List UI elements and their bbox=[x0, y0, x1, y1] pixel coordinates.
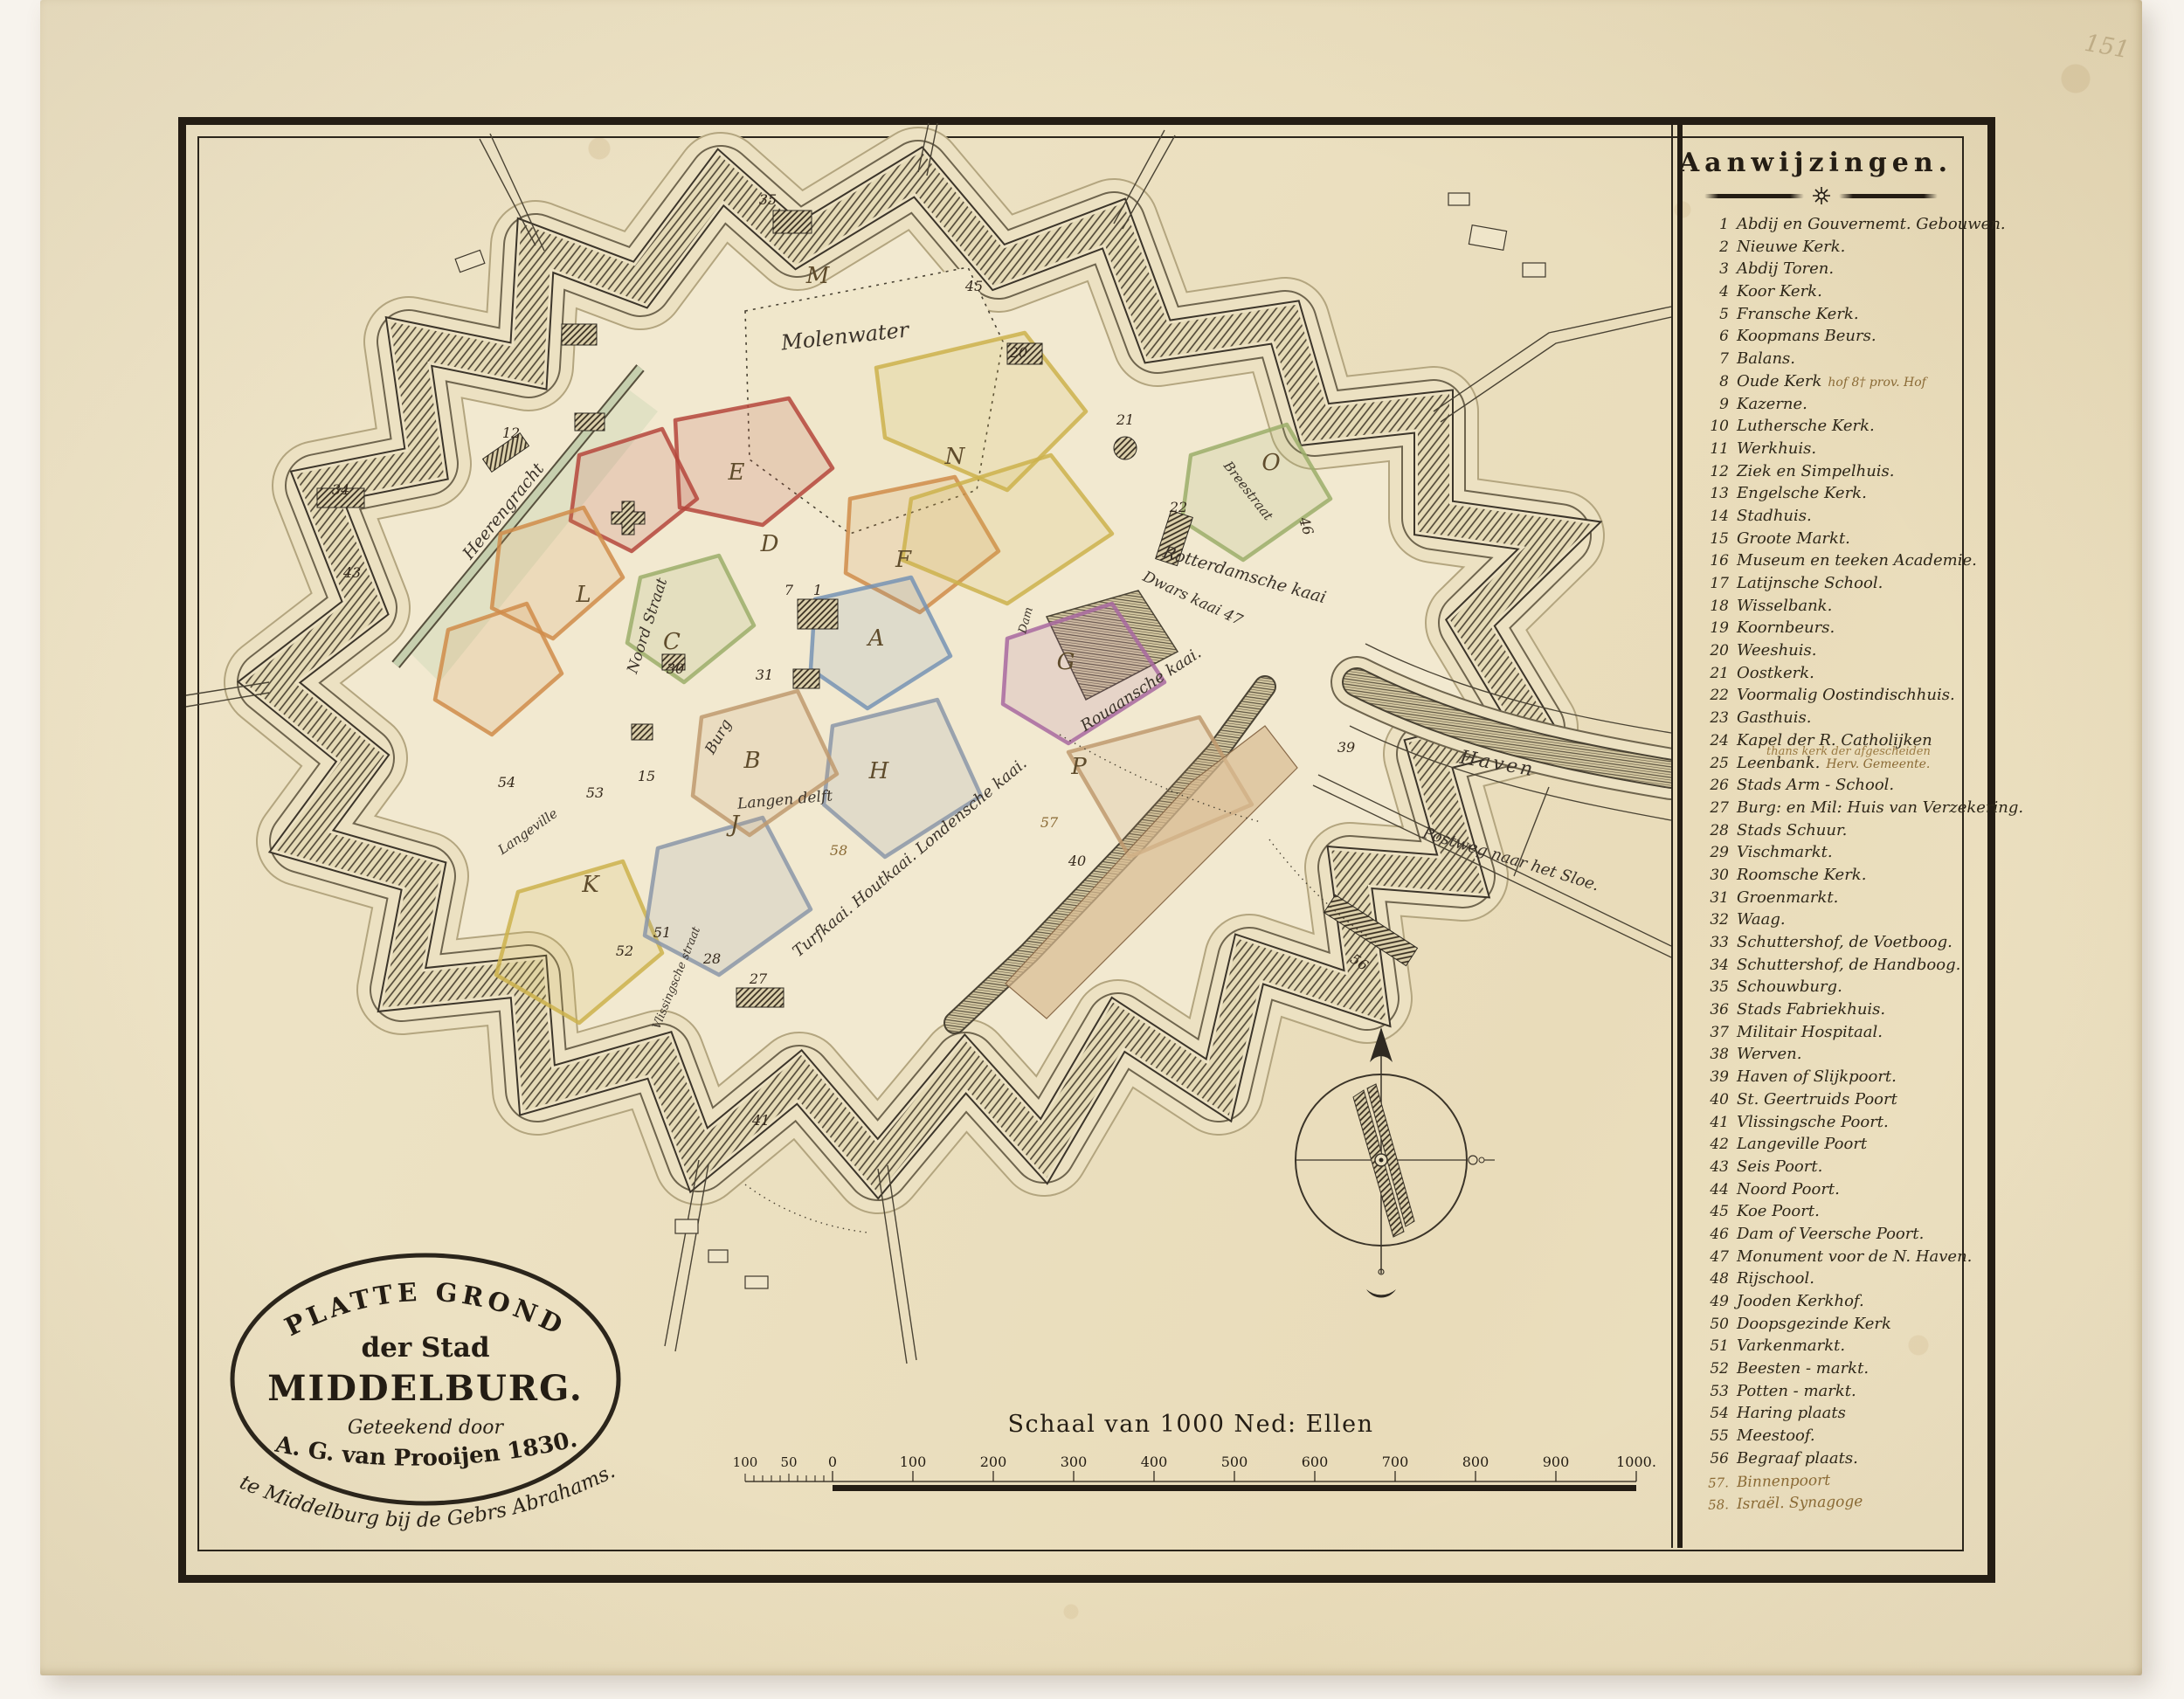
legend-item-label: Langeville Poort bbox=[1737, 1135, 1873, 1151]
svg-text:0: 0 bbox=[828, 1454, 837, 1470]
legend-item-label: Doopsgezinde Kerk bbox=[1737, 1315, 1897, 1331]
legend-item: 19 Koornbeurs. bbox=[1697, 618, 1953, 641]
legend-item-number: 6 bbox=[1697, 328, 1729, 345]
legend-item-label: Abdij en Gouvernemt. Gebouwen. bbox=[1737, 215, 2012, 231]
legend-item-number: 21 bbox=[1697, 665, 1729, 682]
legend-item: 41 Vlissingsche Poort. bbox=[1697, 1113, 1953, 1136]
map-number: 45 bbox=[964, 278, 983, 294]
map-number: 31 bbox=[756, 666, 773, 683]
svg-text:100: 100 bbox=[900, 1454, 927, 1470]
legend-item-label: Haven of Slijkpoort. bbox=[1737, 1067, 1903, 1084]
legend-item: 29 Vischmarkt. bbox=[1697, 843, 1953, 866]
legend-item-label: Kazerne. bbox=[1737, 395, 1814, 411]
scale-main-ticks bbox=[833, 1471, 1636, 1481]
map-number: 20 bbox=[1009, 344, 1027, 361]
legend-item: 28 Stads Schuur. bbox=[1697, 821, 1953, 844]
legend-item-number: 36 bbox=[1697, 1001, 1729, 1019]
legend-item-number: 45 bbox=[1697, 1203, 1729, 1220]
block-kazerne bbox=[575, 413, 605, 431]
block-oostkerk bbox=[1114, 437, 1137, 459]
legend-item-number: 27 bbox=[1697, 799, 1729, 817]
suburb-block bbox=[1523, 263, 1545, 277]
legend-item-number: 8 bbox=[1697, 373, 1729, 390]
district-letter: E bbox=[728, 459, 745, 486]
legend-item: 37 Militair Hospitaal. bbox=[1697, 1023, 1953, 1046]
scale-pre-label: 100 bbox=[733, 1454, 758, 1470]
legend-item-number: 20 bbox=[1697, 642, 1729, 660]
legend-item-number: 56 bbox=[1697, 1450, 1729, 1468]
legend-item-number: 57. bbox=[1697, 1475, 1729, 1491]
district-letter: K bbox=[581, 872, 600, 898]
legend-item-number: 28 bbox=[1697, 822, 1729, 839]
legend-item-label: Monument voor de N. Haven. bbox=[1737, 1247, 1978, 1264]
legend-item-label: Rijschool. bbox=[1737, 1269, 1821, 1286]
legend-item: 54 Haring plaats bbox=[1697, 1404, 1953, 1426]
scanned-map-sheet: { "corner_mark": "151", "cartouche": { "… bbox=[0, 0, 2184, 1699]
legend-item-number: 7 bbox=[1697, 350, 1729, 368]
suburb-block bbox=[708, 1250, 728, 1262]
legend-item: 26 Stads Arm - School. bbox=[1697, 776, 1953, 798]
legend-item-number: 38 bbox=[1697, 1046, 1729, 1063]
legend-item-label: Luthersche Kerk. bbox=[1737, 417, 1881, 433]
suburb-block bbox=[1469, 225, 1506, 251]
legend-item-label: Schuttershof, de Voetboog. bbox=[1737, 933, 1959, 950]
map-number: 43 bbox=[342, 564, 361, 581]
legend-item-label: Abdij Toren. bbox=[1737, 259, 1840, 276]
legend-item-label: Haring plaats bbox=[1737, 1404, 1852, 1420]
map-number: 15 bbox=[638, 768, 655, 784]
legend-item-label: Fransche Kerk. bbox=[1737, 305, 1865, 321]
legend-item-number: 11 bbox=[1697, 440, 1729, 458]
legend-item: 17 Latijnsche School. bbox=[1697, 574, 1953, 597]
legend-item: 49 Jooden Kerkhof. bbox=[1697, 1292, 1953, 1315]
legend-item: 1 Abdij en Gouvernemt. Gebouwen. bbox=[1697, 215, 1953, 238]
legend-item: 6 Koopmans Beurs. bbox=[1697, 327, 1953, 349]
city-map: Molenwater Heerengracht Noord Straat Bur… bbox=[186, 123, 1671, 1564]
legend-item-number: 40 bbox=[1697, 1091, 1729, 1108]
legend-item: 58. Israël. Synagoge bbox=[1697, 1491, 1953, 1519]
legend-item-number: 58. bbox=[1697, 1497, 1729, 1514]
legend-panel: Aanwijzingen. 1 Abdij en Gouvernemt. Geb… bbox=[1671, 125, 1960, 1548]
block-huis-verzekering bbox=[736, 988, 784, 1007]
legend-item: 12 Ziek en Simpelhuis. bbox=[1697, 462, 1953, 485]
legend-item-number: 26 bbox=[1697, 777, 1729, 794]
suburb-block bbox=[745, 1276, 768, 1288]
legend-item: 10 Luthersche Kerk. bbox=[1697, 417, 1953, 439]
map-number: 51 bbox=[653, 924, 671, 941]
legend-item: 55 Meestoof. bbox=[1697, 1426, 1953, 1449]
map-number: 34 bbox=[332, 481, 349, 498]
legend-item-label: Schouwburg. bbox=[1737, 977, 1849, 994]
legend-item-number: 44 bbox=[1697, 1181, 1729, 1198]
legend-item: 20 Weeshuis. bbox=[1697, 641, 1953, 664]
legend-item: 9 Kazerne. bbox=[1697, 395, 1953, 418]
legend-item: 2 Nieuwe Kerk. bbox=[1697, 238, 1953, 260]
legend-item-label: Koornbeurs. bbox=[1737, 618, 1841, 635]
legend-item-label: Voormalig Oostindischhuis. bbox=[1737, 686, 1961, 702]
district-letter: M bbox=[805, 263, 831, 289]
legend-item: 46 Dam of Veersche Poort. bbox=[1697, 1225, 1953, 1247]
legend-item: 23 Gasthuis. bbox=[1697, 708, 1953, 731]
legend-item: 36 Stads Fabriekhuis. bbox=[1697, 1000, 1953, 1023]
district-letter: N bbox=[944, 444, 966, 470]
legend-item-label: Wisselbank. bbox=[1737, 597, 1838, 613]
legend-item-number: 1 bbox=[1697, 216, 1729, 233]
legend-item-number: 29 bbox=[1697, 844, 1729, 861]
legend-item: 56 Begraaf plaats. bbox=[1697, 1449, 1953, 1472]
legend-item: 38 Werven. bbox=[1697, 1045, 1953, 1067]
legend-item: 25 Leenbank.Herv. Gemeente. bbox=[1697, 754, 1953, 777]
map-number: 35 bbox=[759, 191, 777, 208]
legend-item: 43 Seis Poort. bbox=[1697, 1157, 1953, 1180]
legend-item-number: 24 bbox=[1697, 732, 1729, 749]
map-number: 52 bbox=[616, 943, 633, 959]
legend-item-number: 31 bbox=[1697, 889, 1729, 907]
district-letter: F bbox=[895, 547, 912, 573]
title-cartouche: PLATTE GROND der Stad MIDDELBURG. Geteek… bbox=[232, 1255, 619, 1532]
svg-text:1000.: 1000. bbox=[1616, 1454, 1656, 1470]
legend-item-label: Balans. bbox=[1737, 349, 1801, 366]
legend-item-label: Binnenpoort bbox=[1737, 1471, 1837, 1488]
svg-text:400: 400 bbox=[1141, 1454, 1168, 1470]
legend-item-label: St. Geertruids Poort bbox=[1737, 1090, 1904, 1107]
suburb-block bbox=[1448, 193, 1469, 205]
cartouche-line2: der Stad bbox=[362, 1332, 490, 1364]
legend-item-number: 55 bbox=[1697, 1427, 1729, 1445]
legend-item-label: Latijnsche School. bbox=[1737, 574, 1889, 591]
legend-item-label: Oude Kerkhof 8† prov. Hof bbox=[1737, 372, 1926, 389]
legend-item: 53 Potten - markt. bbox=[1697, 1382, 1953, 1405]
map-number: 22 bbox=[1169, 499, 1187, 515]
legend-item-label: Leenbank.Herv. Gemeente. bbox=[1737, 754, 1930, 770]
scale-pre-ticks bbox=[745, 1474, 824, 1481]
legend-item: 30 Roomsche Kerk. bbox=[1697, 866, 1953, 888]
legend-item-number: 43 bbox=[1697, 1158, 1729, 1176]
legend-item: 27 Burg: en Mil: Huis van Verzekering. bbox=[1697, 798, 1953, 821]
legend-item-number: 17 bbox=[1697, 575, 1729, 592]
scale-bar-title: Schaal van 1000 Ned: Ellen bbox=[1008, 1411, 1374, 1438]
legend-item: 52 Beesten - markt. bbox=[1697, 1359, 1953, 1382]
legend-item-label: Burg: en Mil: Huis van Verzekering. bbox=[1737, 798, 2029, 815]
legend-item-label: Groote Markt. bbox=[1737, 529, 1856, 546]
block-schouwburg bbox=[773, 211, 812, 233]
district-letter: A bbox=[867, 625, 885, 652]
legend-item-number: 22 bbox=[1697, 687, 1729, 704]
legend-item: 51 Varkenmarkt. bbox=[1697, 1336, 1953, 1359]
legend-item-number: 23 bbox=[1697, 709, 1729, 727]
map-number: 27 bbox=[749, 970, 768, 987]
map-number: 39 bbox=[1337, 739, 1355, 756]
legend-item-number: 33 bbox=[1697, 934, 1729, 951]
svg-text:200: 200 bbox=[980, 1454, 1007, 1470]
legend-item-label: Dam of Veersche Poort. bbox=[1737, 1225, 1930, 1241]
legend-item-number: 3 bbox=[1697, 260, 1729, 278]
east-ornament-icon bbox=[1479, 1157, 1484, 1163]
legend-item-number: 12 bbox=[1697, 463, 1729, 480]
block-stadhuis bbox=[632, 724, 653, 740]
legend-item-label: Stads Fabriekhuis. bbox=[1737, 1000, 1891, 1017]
legend-item-label: Seis Poort. bbox=[1737, 1157, 1828, 1174]
legend-item-label: Meestoof. bbox=[1737, 1426, 1821, 1443]
ornament-rule-left bbox=[1704, 194, 1804, 198]
legend-title: Aanwijzingen. bbox=[1671, 148, 1960, 178]
district-letter: L bbox=[575, 582, 591, 608]
legend-item-label: Potten - markt. bbox=[1737, 1382, 1863, 1399]
legend-item-label: Gasthuis. bbox=[1737, 708, 1817, 725]
map-number: 1 bbox=[813, 582, 822, 598]
block-abbey bbox=[798, 599, 838, 629]
legend-item: 35 Schouwburg. bbox=[1697, 977, 1953, 1000]
legend-list: 1 Abdij en Gouvernemt. Gebouwen. 2 Nieuw… bbox=[1697, 215, 1953, 1516]
legend-item-label: Koopmans Beurs. bbox=[1737, 327, 1883, 343]
legend-item-number: 51 bbox=[1697, 1337, 1729, 1355]
svg-text:300: 300 bbox=[1061, 1454, 1088, 1470]
district-letter: P bbox=[1070, 754, 1087, 780]
district-letter: D bbox=[760, 531, 779, 557]
compass-hub-dot bbox=[1379, 1158, 1384, 1163]
legend-item-number: 35 bbox=[1697, 978, 1729, 996]
legend-item: 3 Abdij Toren. bbox=[1697, 259, 1953, 282]
legend-item: 18 Wisselbank. bbox=[1697, 597, 1953, 619]
legend-item-label: Stads Arm - School. bbox=[1737, 776, 1900, 792]
legend-item-number: 15 bbox=[1697, 530, 1729, 548]
legend-item: 16 Museum en teeken Academie. bbox=[1697, 551, 1953, 574]
map-number: 54 bbox=[498, 774, 515, 791]
legend-item: 15 Groote Markt. bbox=[1697, 529, 1953, 552]
legend-item-label: Werven. bbox=[1737, 1045, 1807, 1061]
legend-item: 45 Koe Poort. bbox=[1697, 1202, 1953, 1225]
legend-item-label: Roomsche Kerk. bbox=[1737, 866, 1872, 882]
suburb-block bbox=[455, 250, 485, 272]
svg-text:700: 700 bbox=[1382, 1454, 1409, 1470]
legend-item: 24 Kapel der R. Catholijkenthans kerk de… bbox=[1697, 731, 1953, 754]
legend-item-number: 53 bbox=[1697, 1383, 1729, 1400]
legend-item: 11 Werkhuis. bbox=[1697, 439, 1953, 462]
legend-item-number: 5 bbox=[1697, 306, 1729, 323]
ornament-rule-right bbox=[1839, 194, 1939, 198]
sun-ornament-icon bbox=[1811, 185, 1832, 206]
district-letter: H bbox=[868, 758, 890, 784]
map-number: 12 bbox=[502, 425, 520, 441]
legend-item-number: 48 bbox=[1697, 1270, 1729, 1288]
legend-item: 7 Balans. bbox=[1697, 349, 1953, 372]
svg-text:800: 800 bbox=[1462, 1454, 1489, 1470]
legend-item-number: 37 bbox=[1697, 1024, 1729, 1041]
legend-item-number: 39 bbox=[1697, 1068, 1729, 1086]
legend-item: 14 Stadhuis. bbox=[1697, 507, 1953, 529]
cartouche-line3: MIDDELBURG. bbox=[267, 1368, 584, 1409]
legend-item-label: Schuttershof, de Handboog. bbox=[1737, 956, 1966, 972]
legend-item-label: Israël. Synagoge bbox=[1737, 1493, 1870, 1511]
legend-item: 48 Rijschool. bbox=[1697, 1269, 1953, 1292]
suburb-block bbox=[675, 1219, 698, 1233]
legend-item-number: 30 bbox=[1697, 867, 1729, 884]
map-number: 30 bbox=[667, 660, 684, 677]
legend-item-label: Werkhuis. bbox=[1737, 439, 1822, 456]
legend-item: 22 Voormalig Oostindischhuis. bbox=[1697, 686, 1953, 708]
handwritten-annotation: Herv. Gemeente. bbox=[1826, 757, 1930, 771]
legend-item: 34 Schuttershof, de Handboog. bbox=[1697, 956, 1953, 978]
legend-item-label: Engelsche Kerk. bbox=[1737, 484, 1873, 501]
legend-item-label: Museum en teeken Academie. bbox=[1737, 551, 1983, 568]
legend-item-label: Koe Poort. bbox=[1737, 1202, 1826, 1219]
legend-item-number: 47 bbox=[1697, 1248, 1729, 1266]
legend-item: 31 Groenmarkt. bbox=[1697, 888, 1953, 911]
scale-bar: Schaal van 1000 Ned: Ellen 100 50 0 100 … bbox=[733, 1411, 1656, 1491]
legend-item-number: 34 bbox=[1697, 957, 1729, 974]
map-number: 53 bbox=[586, 784, 604, 801]
svg-text:900: 900 bbox=[1543, 1454, 1570, 1470]
legend-item-label: Vlissingsche Poort. bbox=[1737, 1113, 1895, 1129]
scale-labels: 0 100 200 300 400 500 600 700 800 900 10… bbox=[828, 1454, 1656, 1470]
legend-item-number: 42 bbox=[1697, 1136, 1729, 1153]
legend-item-label: Stads Schuur. bbox=[1737, 821, 1853, 838]
district-letter: C bbox=[663, 629, 681, 655]
legend-item-number: 2 bbox=[1697, 238, 1729, 256]
legend-item-number: 16 bbox=[1697, 552, 1729, 570]
legend-item: 39 Haven of Slijkpoort. bbox=[1697, 1067, 1953, 1090]
legend-item: 44 Noord Poort. bbox=[1697, 1180, 1953, 1203]
map-number: 28 bbox=[702, 950, 721, 967]
svg-text:500: 500 bbox=[1221, 1454, 1248, 1470]
legend-item-label: Groenmarkt. bbox=[1737, 888, 1844, 905]
scale-heavy-bar bbox=[833, 1485, 1636, 1491]
handwritten-annotation: hof 8† prov. Hof bbox=[1828, 376, 1926, 390]
district-letter: G bbox=[1057, 649, 1075, 675]
map-number: 57 bbox=[1040, 814, 1059, 831]
legend-item: 4 Koor Kerk. bbox=[1697, 282, 1953, 305]
legend-item-number: 54 bbox=[1697, 1405, 1729, 1422]
map-number: 41 bbox=[751, 1112, 770, 1129]
legend-item-number: 19 bbox=[1697, 619, 1729, 637]
legend-item: 32 Waag. bbox=[1697, 910, 1953, 933]
legend-item-label: Varkenmarkt. bbox=[1737, 1336, 1851, 1353]
svg-text:600: 600 bbox=[1302, 1454, 1329, 1470]
east-ornament-icon bbox=[1469, 1156, 1477, 1164]
legend-item-number: 25 bbox=[1697, 755, 1729, 772]
legend-item-number: 46 bbox=[1697, 1226, 1729, 1243]
cartouche-line4: Geteekend door bbox=[348, 1417, 505, 1439]
legend-item: 13 Engelsche Kerk. bbox=[1697, 484, 1953, 507]
legend-item-number: 52 bbox=[1697, 1360, 1729, 1378]
legend-item: 47 Monument voor de N. Haven. bbox=[1697, 1247, 1953, 1270]
legend-item-label: Begraaf plaats. bbox=[1737, 1449, 1864, 1466]
map-number: 58 bbox=[830, 842, 847, 859]
legend-item-number: 50 bbox=[1697, 1316, 1729, 1333]
legend-item-label: Oostkerk. bbox=[1737, 664, 1821, 680]
map-number: 40 bbox=[1068, 853, 1086, 869]
legend-item: 42 Langeville Poort bbox=[1697, 1135, 1953, 1157]
block-nieuwe-kerk bbox=[793, 669, 819, 688]
legend-item-label: Ziek en Simpelhuis. bbox=[1737, 462, 1901, 479]
legend-item-label: Kapel der R. Catholijkenthans kerk der a… bbox=[1737, 731, 1939, 756]
legend-item-label: Stadhuis. bbox=[1737, 507, 1818, 523]
legend-item-number: 9 bbox=[1697, 396, 1729, 413]
compass-rose bbox=[1296, 1027, 1495, 1297]
legend-item: 40 St. Geertruids Poort bbox=[1697, 1090, 1953, 1113]
district-letter: O bbox=[1261, 450, 1280, 476]
legend-item-label: Beesten - markt. bbox=[1737, 1359, 1875, 1376]
legend-item-number: 14 bbox=[1697, 508, 1729, 525]
block-werkhuis bbox=[562, 324, 597, 345]
legend-item-number: 18 bbox=[1697, 597, 1729, 615]
map-number: 21 bbox=[1116, 411, 1134, 428]
south-crescent-icon bbox=[1366, 1289, 1396, 1297]
legend-item-number: 49 bbox=[1697, 1293, 1729, 1310]
legend-item: 8 Oude Kerkhof 8† prov. Hof bbox=[1697, 372, 1953, 395]
legend-item-label: Noord Poort. bbox=[1737, 1180, 1846, 1197]
legend-item: 21 Oostkerk. bbox=[1697, 664, 1953, 687]
legend-item-label: Jooden Kerkhof. bbox=[1737, 1292, 1870, 1309]
legend-item: 5 Fransche Kerk. bbox=[1697, 305, 1953, 328]
legend-item-label: Militair Hospitaal. bbox=[1737, 1023, 1889, 1039]
legend-ornament bbox=[1704, 185, 1938, 206]
legend-item-label: Nieuwe Kerk. bbox=[1737, 238, 1851, 254]
legend-item: 50 Doopsgezinde Kerk bbox=[1697, 1315, 1953, 1337]
legend-item-label: Waag. bbox=[1737, 910, 1792, 927]
legend-item-number: 4 bbox=[1697, 283, 1729, 300]
legend-item-number: 32 bbox=[1697, 911, 1729, 929]
legend-item-label: Koor Kerk. bbox=[1737, 282, 1828, 299]
legend-item-number: 13 bbox=[1697, 485, 1729, 502]
legend-item-label: Weeshuis. bbox=[1737, 641, 1822, 658]
legend-item: 33 Schuttershof, de Voetboog. bbox=[1697, 933, 1953, 956]
legend-item-label: Vischmarkt. bbox=[1737, 843, 1839, 860]
map-number: 7 bbox=[784, 582, 794, 598]
district-letter: B bbox=[743, 748, 760, 774]
legend-item-number: 10 bbox=[1697, 418, 1729, 435]
legend-item-number: 41 bbox=[1697, 1114, 1729, 1131]
scale-pre-label: 50 bbox=[780, 1454, 797, 1470]
